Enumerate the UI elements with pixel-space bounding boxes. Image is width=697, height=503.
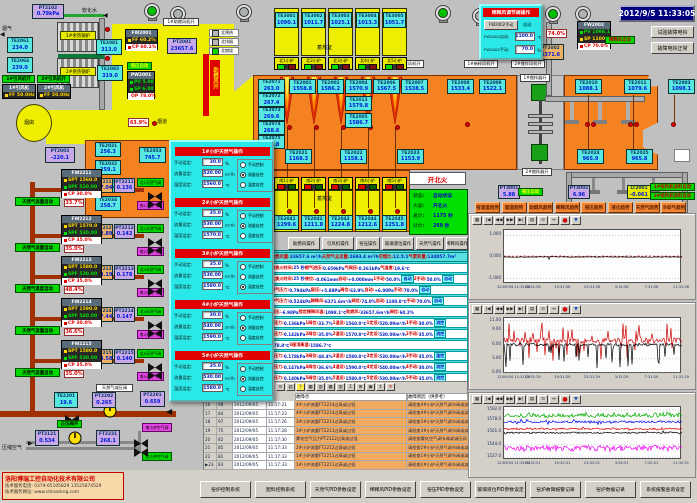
alarm-cell: 2012/09/05 — [233, 444, 267, 453]
flue-damper-position: 63.9% — [128, 118, 149, 127]
north-firing-indicator: 开北火 — [409, 172, 466, 185]
radio-icon[interactable] — [240, 223, 246, 229]
alarm-toolbar-icon[interactable]: ⊞ — [356, 383, 365, 391]
ibox-PT2202: PT22020.265 — [92, 392, 116, 408]
gas-flow-auto-1: 天然气流量自动 — [15, 197, 60, 206]
valve-1-position: 33.7% — [64, 199, 84, 207]
popup-section-title: 4#小炉天然气操作 — [175, 300, 270, 309]
popup-setpoint-input[interactable]: 530.00 — [202, 271, 223, 279]
ibox-LT2001: LT2001-0.061 — [627, 185, 651, 199]
alarm-cell: 75 — [217, 427, 233, 436]
popup-setpoint-input[interactable]: 35.0 — [202, 362, 223, 370]
chart-toolbar-icon[interactable]: ↔ — [549, 216, 559, 225]
chart-toolbar-icon[interactable]: |◀ — [483, 395, 493, 404]
ibox-TE2004: TE20041570.9 — [345, 79, 372, 94]
port-北1小炉: 北1小炉 — [274, 57, 299, 70]
bottom-button-窑炉故障报警记录[interactable]: 窑炉故障报警记录 — [530, 481, 581, 498]
popup-setpoint-input[interactable]: 1570.0 — [202, 231, 223, 239]
plot-area — [503, 406, 681, 459]
dilution-valve-dialog: 稀释风调节阀操作FW2002手动自动FW2002自动:1100.0℃FW2002… — [479, 4, 543, 60]
alarm-cell: 4#小炉流量FT2214过高或过低 — [295, 401, 407, 410]
bottom-button-系统报警查询设定[interactable]: 系统报警查询设定 — [640, 481, 691, 498]
radio-icon[interactable] — [240, 386, 246, 392]
feeder-1-auto-label: 1#投料机进料自动 — [650, 183, 695, 191]
action-button-引风机操作[interactable]: 引风机操作 — [322, 237, 354, 250]
panel-2#引风机: 2#引风机FF 50.0Hz — [37, 84, 71, 99]
popup-mode-radio-group: 手动控制流量自控温度自控 — [237, 363, 273, 396]
panel-FW2213: FW2213SPT 1580.0SPF 530.00CP 35.0% — [61, 256, 102, 285]
alarm-cell: 4#小炉流量FT2214过高或过低 — [295, 410, 407, 419]
trend-button-烟道趋势[interactable]: 烟道趋势 — [502, 202, 527, 213]
panel-PW2001: PW2001PV 5.88SP 6.00OP 78.0% — [127, 71, 155, 99]
chart-toolbar-icon[interactable]: ⊙ — [538, 395, 548, 404]
alarm-cell: 84 — [217, 410, 233, 419]
fan-impeller-icon — [438, 8, 448, 18]
flue-label: 烟道 — [157, 117, 173, 125]
chart-toolbar-icon[interactable]: ▶▶ — [505, 395, 515, 404]
alarm-bell-normal-button[interactable]: 故障电铃正常 — [651, 42, 694, 54]
popup-setpoint-input[interactable]: 35.0 — [202, 260, 223, 268]
port-indicator-icon — [331, 184, 339, 190]
status-row: 南换火时间: 25 秒 燃气进压:0.659kPa 气阀压:0.261kPa 气… — [270, 263, 468, 273]
alarm-cell: 82 — [217, 435, 233, 444]
popup-mode-radio[interactable]: 温度自控 — [238, 333, 272, 343]
chart-toolbar-icon[interactable]: ▦ — [472, 216, 482, 225]
radio-icon[interactable] — [240, 233, 246, 239]
chart-toolbar-icon[interactable]: ▶▶ — [505, 216, 515, 225]
indicator-dot — [634, 122, 639, 127]
pipe-drop-2 — [598, 102, 602, 120]
port-indicator-icon — [304, 184, 312, 190]
legend-state-icon — [212, 48, 219, 55]
chart-toolbar-icon[interactable]: ● — [560, 305, 570, 314]
bottom-button-窑炉数据记录[interactable]: 窑炉数据记录 — [585, 481, 636, 498]
bottom-button-天然气PID参数设定[interactable]: 天然气PID参数设定 — [310, 481, 361, 498]
company-name: 洛阳博瑞工控自动化技术有限公司 — [5, 474, 121, 483]
popup-section-title: 3#小炉天然气操作 — [175, 249, 270, 258]
popup-mode-radio[interactable]: 手动控制 — [238, 364, 272, 374]
action-button-稀释风操作[interactable]: 稀释风操作 — [446, 237, 468, 250]
valve-3-position: 48.4% — [64, 286, 84, 294]
alarm-header-reason: 故障原因（供参考） — [407, 393, 468, 401]
reversal-legend-item: 北排烟 — [209, 38, 239, 46]
arc-hanger-1 — [592, 178, 595, 190]
kiln-pressure-auto-label-2: 窑压自动 — [518, 188, 543, 196]
chart-toolbar-icon[interactable]: |◀ — [483, 216, 493, 225]
ibox-TE2011: TE20111079.6 — [624, 79, 651, 94]
legend-state-icon — [212, 39, 219, 46]
indicator-dot — [287, 125, 292, 130]
chart-toolbar-icon[interactable]: ▶| — [516, 395, 526, 404]
popup-mode-radio[interactable]: 手动控制 — [238, 211, 272, 221]
company-web: 技术服务网址: www.chinaskng.com — [5, 489, 121, 495]
popup-setpoint-input[interactable]: 1560.0 — [202, 180, 223, 188]
alarm-cell: 81 — [217, 453, 233, 462]
bottom-button-玻璃液位PID参数设定[interactable]: 玻璃液位PID参数设定 — [475, 481, 526, 498]
action-button-窑压操作[interactable]: 窑压操作 — [356, 237, 380, 250]
ibox-TE2043: TE20431224.8 — [328, 215, 353, 230]
y-axis-label: 9.00 — [476, 326, 501, 332]
dialog-setpoint-input[interactable]: 1100.0 — [515, 32, 535, 41]
port-indicator-icon — [342, 64, 350, 70]
alarm-cell: 请检查4#小炉天然气调节阀或减压阀 — [407, 401, 469, 410]
ibox-TE2021: TE20211168.3 — [285, 149, 312, 164]
dialog-auto-label: 自动 — [523, 21, 541, 29]
y-axis-label: 1544.0 — [476, 441, 501, 447]
status-row: 窑压:-6.98Pa 恒定 稀释风温:1098.1℃ 助燃风:33657.6m³… — [270, 307, 468, 317]
feeder-2-auto-label: 2#投料机进料自动 — [650, 192, 695, 200]
positive-valve-open-label: 正压阀开 — [57, 420, 82, 428]
fan-icon — [236, 4, 252, 20]
valve-icon — [147, 194, 163, 203]
fan-icon — [545, 6, 561, 22]
chart-toolbar-icon[interactable]: ⊙ — [538, 216, 548, 225]
indicator-dot — [395, 209, 400, 214]
bottom-button-窑炉控制系统[interactable]: 窑炉控制系统 — [200, 481, 251, 498]
popup-mode-radio[interactable]: 流量自控 — [238, 272, 272, 282]
action-button-天然气操作[interactable]: 天然气操作 — [416, 237, 444, 250]
radio-icon[interactable] — [240, 182, 246, 188]
alarm-header-fault: 故障点 — [295, 393, 407, 401]
bottom-button-稀释风PID参数设定[interactable]: 稀释风PID参数设定 — [365, 481, 416, 498]
compressed-air-label: 压缩空气 — [2, 443, 27, 451]
alarm-cell: 1#小炉流量FT2211过高或过低 — [295, 453, 407, 462]
alarm-toolbar-icon[interactable]: ▤ — [286, 383, 295, 391]
popup-setpoint-input[interactable]: 1580.0 — [202, 384, 223, 392]
port-indicator-icon — [396, 184, 404, 190]
valve-4-position: 36.6% — [64, 328, 84, 336]
alarm-cell: 请检查3#小炉天然气调节阀或减压阀 — [407, 427, 469, 436]
y-axis-label: 1592.0 — [476, 406, 501, 412]
chart-toolbar-icon[interactable]: ▶| — [516, 216, 526, 225]
y-axis-label: 1527.0 — [476, 453, 501, 459]
chart-toolbar-icon[interactable]: ● — [560, 216, 570, 225]
popup-mode-radio-group: 手动控制流量自控温度自控 — [237, 261, 273, 294]
fw2002-manual-button[interactable]: FW2002手动 — [484, 20, 518, 30]
alarm-cell: 18 — [204, 418, 217, 427]
te-line-3 — [674, 95, 675, 122]
kiln-pressure-auto-label: 窑压自动 — [127, 62, 152, 70]
y-axis-label: 3.00 — [476, 355, 501, 361]
plot-area — [503, 229, 681, 283]
chart-toolbar-icon[interactable]: ▶▶ — [505, 305, 515, 314]
ibox-TE3004: TE30041013.3 — [356, 12, 379, 28]
ibox-TE2034: TE2034258.7 — [95, 196, 121, 211]
port-indicator-icon — [358, 184, 366, 190]
action-button-助燃风操作[interactable]: 助燃风操作 — [288, 237, 320, 250]
alarm-toolbar-icon[interactable]: Σ — [346, 383, 355, 391]
ibox-TE2009: TE20091522.1 — [479, 79, 506, 94]
dialog-title: 稀释风调节阀操作 — [483, 8, 539, 17]
indicator-dot — [671, 122, 676, 127]
chart-toolbar-icon[interactable]: ▤ — [527, 216, 537, 225]
valve-icon — [64, 409, 80, 418]
chart-toolbar-icon[interactable]: ◀◀ — [494, 216, 504, 225]
popup-mode-radio[interactable]: 温度自控 — [238, 180, 272, 190]
popup-setpoint-input[interactable]: 30.0 — [202, 158, 223, 166]
y-axis-label: 0.000 — [476, 253, 501, 259]
chart-toolbar-icon[interactable]: ● — [560, 395, 570, 404]
burner-line-3 — [341, 128, 342, 208]
popup-mode-radio[interactable]: 流量自控 — [238, 374, 272, 384]
alarm-toolbar-icon[interactable]: ≡ — [276, 383, 285, 391]
indicator-dot — [465, 122, 470, 127]
valve-icon — [147, 240, 163, 249]
ibox-TE2025: TE2025965.8 — [626, 149, 653, 164]
dialog-setpoint-input[interactable]: 70.0 — [515, 45, 535, 54]
popup-mode-radio[interactable]: 温度自控 — [238, 231, 272, 241]
popup-setpoint-input[interactable]: 540.00 — [202, 322, 223, 330]
port-南2小炉: 南2小炉 — [301, 177, 326, 190]
popup-mode-radio[interactable]: 手动控制 — [238, 313, 272, 323]
stirrer-1-status: 1#搅拌器开 — [520, 74, 550, 82]
chart-toolbar-icon[interactable]: ▼ — [571, 216, 581, 225]
port-南5小炉: 南5小炉 — [382, 177, 407, 190]
radio-icon[interactable] — [240, 264, 246, 270]
alarm-cell: 2#小炉流量FT2212过高或过低 — [295, 444, 407, 453]
popup-setpoint-input[interactable]: 35.0 — [202, 209, 223, 217]
panel-1#引风机: 1#引风机FF 50.0Hz — [2, 84, 36, 99]
trend-button-窑温度趋势[interactable]: 窑温度趋势 — [475, 202, 500, 213]
popup-mode-radio[interactable]: 温度自控 — [238, 384, 272, 394]
chart-toolbar-icon[interactable]: ↔ — [549, 305, 559, 314]
popup-mode-radio[interactable]: 温度自控 — [238, 282, 272, 292]
gas-flow-auto-4: 天然气流量自动 — [15, 326, 60, 335]
alarm-toolbar-icon[interactable]: ↕ — [376, 383, 385, 391]
radio-icon[interactable] — [240, 315, 246, 321]
port-indicator-icon — [385, 184, 393, 190]
alarm-toolbar-icon[interactable]: ▦ — [306, 383, 315, 391]
ibox-PT2201: PT22010.659 — [140, 391, 165, 407]
regenerator-south-label: 蓄热室 — [317, 194, 339, 202]
port-indicator-icon — [396, 64, 404, 70]
x-axis-label: 11:31:29 — [661, 375, 697, 381]
ibox-TE2003: TE20031098.1 — [668, 79, 695, 94]
indicator-dot — [287, 209, 292, 214]
trend-button-冷却气趋势[interactable]: 冷却气趋势 — [661, 202, 686, 213]
alarm-cell: 11:17:33 — [267, 444, 295, 453]
soft-water-arrow-icon: ◀ — [103, 12, 111, 20]
chart-toolbar-icon[interactable]: ▶| — [516, 305, 526, 314]
status-row: 4压力:0.147kPa 4阀位:36.6% 4温设:1590.0℃ 4定设:5… — [270, 362, 468, 372]
port-indicator-icon — [369, 184, 377, 190]
trend-chart-1: ▦|◀◀◀▶▶▶|▤⊙↔●▼1.0000.000-1.00012/09/04 1… — [468, 213, 696, 300]
alarm-cell: ▶23 — [204, 461, 217, 470]
stirrer-disc-2 — [528, 122, 553, 126]
company-box: 洛阳博瑞工控自动化技术有限公司 技术服务电话: 0379-65105829 13… — [2, 472, 124, 500]
trend-button-稀释风趋势[interactable]: 稀释风趋势 — [555, 202, 580, 213]
port-南4小炉: 南4小炉 — [355, 177, 380, 190]
chart-toolbar-icon[interactable]: ▦ — [472, 305, 482, 314]
status-row: 2压力:0.142kPa 2阀位:35.0% 2温设:1570.0℃ 2定设:5… — [270, 329, 468, 339]
chart-toolbar-icon[interactable]: ▼ — [571, 305, 581, 314]
trend-button-液位趋势[interactable]: 液位趋势 — [608, 202, 633, 213]
ibox-TE3002: TE30021011.7 — [302, 12, 325, 28]
port-北4小炉: 北4小炉 — [355, 57, 380, 70]
y-axis-label: 11.00 — [476, 317, 501, 323]
ibox-TE2010: TE20101088.1 — [575, 79, 602, 94]
popup-mode-radio[interactable]: 流量自控 — [238, 323, 272, 333]
x-axis-label: 11:32:51 — [661, 461, 697, 467]
ibox-FT2231: FT2231268.1 — [96, 430, 120, 446]
arc-pipe-top — [566, 172, 688, 178]
ibox-TE2072: TE2072267.4 — [258, 93, 285, 107]
bottom-button-配料控制系统[interactable]: 配料控制系统 — [255, 481, 306, 498]
fan-impeller-icon — [548, 9, 558, 19]
popup-setpoint-input[interactable]: 30.0 — [202, 311, 223, 319]
alarm-cell: 请检查雾化空气调节阀或减压阀 — [407, 435, 469, 444]
alarm-toolbar-icon[interactable]: ▣ — [366, 383, 375, 391]
left-pipe-vert — [99, 18, 105, 110]
alarm-cell: 2012/09/05 — [233, 435, 267, 444]
popup-mode-radio-group: 手动控制流量自控温度自控 — [237, 159, 273, 192]
popup-setpoint-input[interactable]: 1580.0 — [202, 282, 223, 290]
indicator-dot — [368, 209, 373, 214]
combustion-air-bar — [203, 54, 209, 116]
ibox-TE2007: TE20071538.5 — [401, 79, 428, 94]
ibox-TE2031: TE2031256.3 — [95, 142, 121, 157]
valve-icon — [133, 442, 149, 451]
dilution-pipe-h — [545, 96, 645, 102]
popup-mode-radio[interactable]: 流量自控 — [238, 170, 272, 180]
flow-meter-icon — [68, 430, 82, 444]
air-pipe-2 — [26, 447, 140, 450]
test-alarm-bell-button[interactable]: 试验故障电铃 — [651, 26, 694, 38]
popup-mode-radio[interactable]: 流量自控 — [238, 221, 272, 231]
alarm-cell: 2012/09/05 — [233, 453, 267, 462]
status-summary-bar: 助燃风量:33657.6 m³/h 天然气总流量:2693.4 m³/h 空燃比… — [270, 252, 468, 262]
alarm-toolbar-icon[interactable]: ▥ — [316, 383, 325, 391]
id-fan-2-status: 2#引风机开 — [37, 75, 70, 83]
port-南1小炉: 南1小炉 — [274, 177, 299, 190]
popup-setpoint-input[interactable]: 530.00 — [202, 220, 223, 228]
alarm-toolbar-icon[interactable]: ? — [296, 383, 305, 391]
valve-icon — [147, 365, 163, 374]
chart-toolbar-icon[interactable]: ▦ — [472, 395, 482, 404]
indicator-dot — [585, 122, 590, 127]
radio-icon[interactable] — [240, 284, 246, 290]
ibox-PT2214: PT22140.147 — [114, 307, 135, 322]
alarm-cell: 2012/09/05 — [233, 418, 267, 427]
gas-reducer-valve-label: 天然气减压阀 — [96, 384, 133, 392]
popup-mode-radio[interactable]: 手动控制 — [238, 262, 272, 272]
popup-section-title: 2#小炉天然气操作 — [175, 198, 270, 207]
popup-setpoint-input[interactable]: 530.00 — [202, 373, 223, 381]
chart-toolbar-icon[interactable]: |◀ — [483, 305, 493, 314]
alarm-toolbar-icon[interactable]: ✕ — [386, 383, 395, 391]
dilution-valve-position: 74.0% — [546, 29, 567, 38]
alarm-cell: 3#小炉流量FT2213过高或过低 — [295, 427, 407, 436]
alarm-cell: 11:17:26 — [267, 418, 295, 427]
alarm-cell: 11:17:21 — [267, 401, 295, 410]
panel-FW2212: FW2212SPT 1570.0SPF 530.00CP 35.0% — [61, 215, 102, 244]
alarm-cell: 请检查1#小炉天然气调节阀或减压阀 — [407, 453, 469, 462]
alarm-cell: 16 — [204, 401, 217, 410]
ibox-TE2083: TE2083319.0 — [97, 65, 123, 81]
flue-duct-left — [46, 110, 116, 144]
reversal-status-box: 状态:自动状态火态:开北火总计:1175 秒分计:269 秒 — [409, 189, 468, 235]
chart-toolbar-icon[interactable]: ▼ — [571, 395, 581, 404]
popup-mode-radio[interactable]: 手动控制 — [238, 160, 272, 170]
popup-setpoint-input[interactable]: 1590.0 — [202, 333, 223, 341]
radio-icon[interactable] — [240, 274, 246, 280]
alarm-cell: 2012/09/05 — [233, 410, 267, 419]
alarm-toolbar-icon[interactable]: ▥ — [336, 383, 345, 391]
y-axis-label: 1561.0 — [476, 428, 501, 434]
ibox-PT2212: PT22120.142 — [114, 224, 135, 239]
ibox-TE2024: TE2024965.9 — [577, 149, 604, 164]
indicator-dot — [314, 125, 319, 130]
gas-flow-auto-2: 天然气流量自动 — [15, 243, 60, 252]
reversal-legend-item: 北燃烧 — [209, 47, 239, 55]
radio-icon[interactable] — [240, 335, 246, 341]
alarm-cell: 11:17:30 — [267, 435, 295, 444]
valve-2-position: 35.0% — [64, 245, 84, 253]
gas-flow-arrow-icon: ◀ — [166, 407, 176, 417]
burner-line-5 — [395, 128, 396, 208]
chart-toolbar-icon[interactable]: ⊙ — [538, 305, 548, 314]
indicator-dot — [628, 122, 633, 127]
valve-icon — [133, 433, 149, 442]
chart-toolbar-icon[interactable]: ▤ — [527, 305, 537, 314]
chart-toolbar-icon[interactable]: ◀◀ — [494, 395, 504, 404]
indicator-dot — [105, 56, 110, 61]
ibox-TE2073: TE2073269.6 — [258, 107, 285, 121]
chart-toolbar-icon[interactable]: ↔ — [549, 395, 559, 404]
port-indicator-icon — [288, 64, 296, 70]
combustion-air-on-label: 助燃风开 — [210, 60, 220, 96]
ibox-TE2074: TE2074268.6 — [258, 121, 285, 135]
reversal-legend-item: 北预热 — [209, 29, 239, 37]
trend-button-助燃风趋势[interactable]: 助燃风趋势 — [528, 202, 553, 213]
popup-mode-radio-group: 手动控制流量自控温度自控 — [237, 210, 273, 243]
datetime-text: 2012/9/5 11:33:05 — [619, 9, 696, 18]
regenerator-north-label: 蓄热室 — [317, 43, 339, 51]
radio-icon[interactable] — [240, 172, 246, 178]
trend-button-窑压趋势[interactable]: 窑压趋势 — [581, 202, 606, 213]
radio-icon[interactable] — [240, 213, 246, 219]
chart-toolbar-icon[interactable]: ▤ — [527, 395, 537, 404]
ibox-TE3005: TE30051051.7 — [383, 12, 406, 28]
radio-icon[interactable] — [240, 162, 246, 168]
action-button-玻璃液位操作[interactable]: 玻璃液位操作 — [382, 237, 414, 250]
boiler-1-label: 1#余热锅炉 — [60, 31, 96, 40]
port-indicator-icon — [304, 64, 312, 70]
bottom-button-窑压PID参数设定[interactable]: 窑压PID参数设定 — [420, 481, 471, 498]
popup-setpoint-input[interactable]: 520.00 — [202, 169, 223, 177]
stirrer-disc-3 — [528, 130, 553, 134]
radio-icon[interactable] — [240, 325, 246, 331]
chart-toolbar-icon[interactable]: ◀◀ — [494, 305, 504, 314]
pipe-drop-3 — [626, 102, 630, 120]
alarm-cell: 请检查3#小炉天然气调节阀或减压阀 — [407, 418, 469, 427]
fan-icon — [144, 3, 160, 19]
ibox-TE2064: TE2064239.0 — [7, 57, 33, 73]
ibox-TE2008: TE20081533.4 — [447, 79, 474, 94]
alarm-toolbar-icon[interactable]: ▦ — [326, 383, 335, 391]
alarm-cell: 11:17:33 — [267, 461, 295, 470]
ibox-PT2102: PT21020.79kPa — [32, 4, 64, 19]
alarm-cell: 请检查4#小炉天然气调节阀或减压阀 — [407, 410, 469, 419]
radio-icon[interactable] — [240, 376, 246, 382]
valve-5-position: 35.0% — [64, 370, 84, 378]
alarm-cell: 97 — [217, 418, 233, 427]
ibox-TE2053: TE2053745.7 — [139, 147, 166, 163]
gas-operation-popup: 1#小炉天然气操作手动设定:30.0%流量设定:520.00m³/h温度设定:1… — [169, 140, 274, 402]
alarm-cell: 11:17:33 — [267, 453, 295, 462]
radio-icon[interactable] — [240, 366, 246, 372]
trend-button-天然气趋势[interactable]: 天然气趋势 — [635, 202, 660, 213]
